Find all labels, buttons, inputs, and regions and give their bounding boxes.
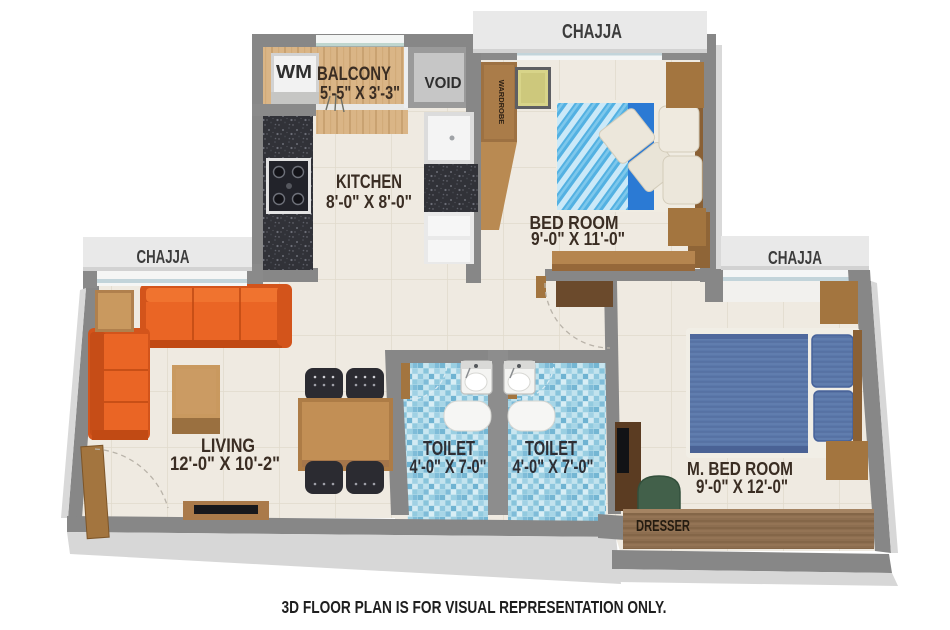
svg-text:3D FLOOR PLAN IS FOR VISUAL RE: 3D FLOOR PLAN IS FOR VISUAL REPRESENTATI… [282, 597, 667, 617]
svg-text:5'-5" X 3'-3": 5'-5" X 3'-3" [320, 82, 400, 103]
svg-text:CHAJJA: CHAJJA [768, 248, 822, 268]
svg-text:9'-0" X 11'-0": 9'-0" X 11'-0" [531, 229, 625, 249]
svg-text:WM: WM [276, 61, 312, 82]
svg-text:9'-0" X 12'-0": 9'-0" X 12'-0" [696, 476, 788, 498]
svg-text:VOID: VOID [425, 75, 462, 92]
svg-text:CHAJJA: CHAJJA [137, 247, 190, 267]
svg-text:4'-0" X 7'-0": 4'-0" X 7'-0" [513, 457, 594, 478]
svg-text:KITCHEN: KITCHEN [336, 171, 402, 193]
svg-text:4'-0" X 7-0": 4'-0" X 7-0" [410, 457, 487, 478]
svg-text:WARDROBE: WARDROBE [497, 80, 506, 125]
svg-text:DRESSER: DRESSER [636, 518, 690, 535]
svg-text:8'-0" X 8'-0": 8'-0" X 8'-0" [326, 191, 412, 212]
svg-text:CHAJJA: CHAJJA [562, 21, 622, 43]
svg-text:12'-0" X 10'-2": 12'-0" X 10'-2" [170, 453, 280, 475]
